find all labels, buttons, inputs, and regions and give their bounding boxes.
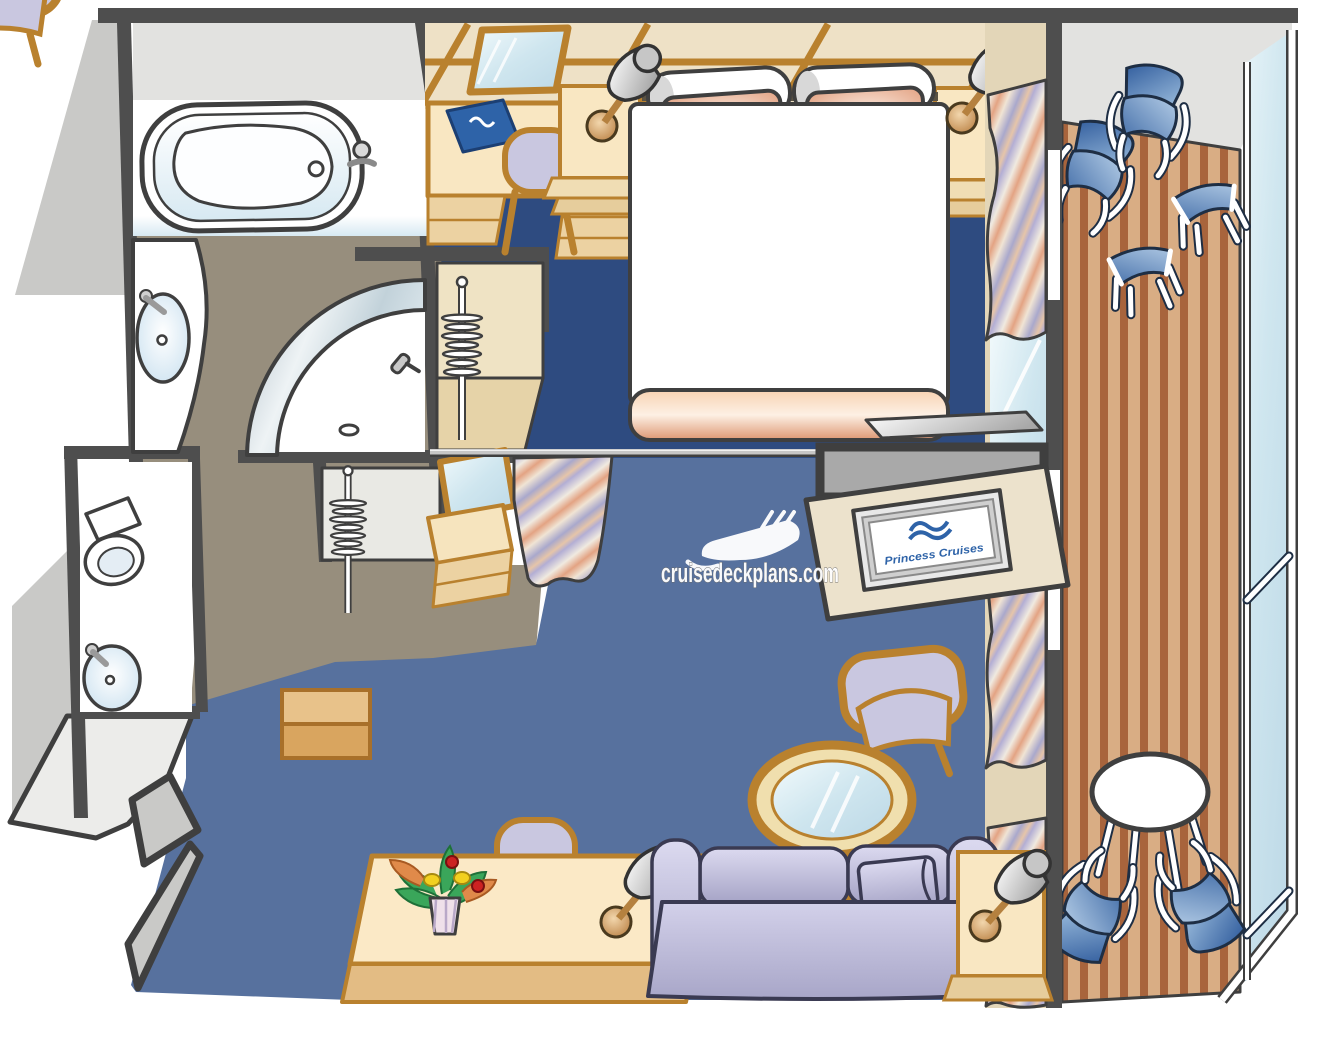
shower-drain [340,425,358,435]
sofa-back-cushion [700,848,848,906]
wc-sink [84,644,140,710]
entry-bench [282,690,370,758]
floor-plan-stage: Princess Cruises [0,0,1325,1050]
bathtub [141,102,375,232]
wall-top [98,8,1298,23]
bathroom-upper-wall-band [133,23,426,100]
balcony [1036,23,1292,1002]
tv-cabinet: Princess Cruises [806,412,1068,619]
duvet [630,104,948,404]
wicker-armchair [0,0,60,66]
suite-floor-plan: Princess Cruises [0,0,1325,1050]
wall-closet-top [355,247,549,261]
divider-window-gap [1048,150,1060,300]
tub-drain [309,162,323,176]
desk-mirror [470,28,568,92]
sink-drain [158,336,167,345]
sofa [648,838,1000,999]
water-closet [80,462,192,712]
queen-bed [630,64,948,440]
desk-front [342,964,694,1002]
wardrobe-1 [437,263,543,450]
watermark-text: cruisedeckplans.com [661,558,839,588]
sofa-seat [648,902,1000,999]
curtain-middle [986,574,1046,768]
curtain-top [986,80,1046,340]
dresser-with-mirror [428,450,514,607]
